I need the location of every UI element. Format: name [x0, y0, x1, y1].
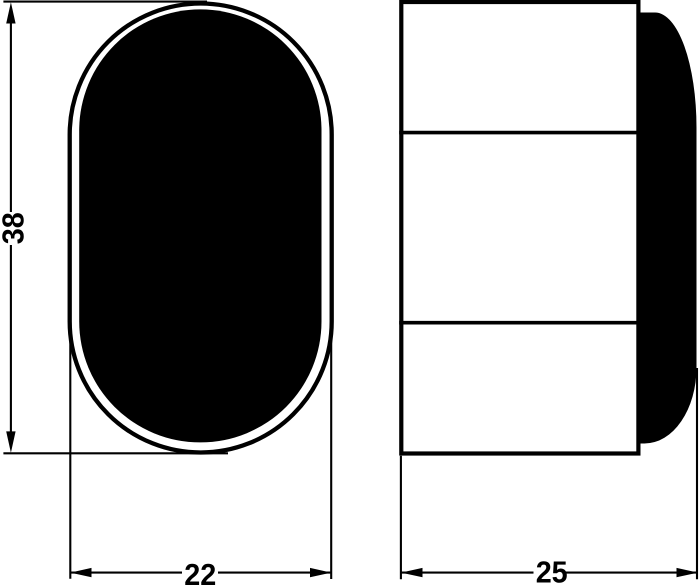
svg-text:38: 38 — [0, 212, 30, 244]
svg-text:22: 22 — [184, 557, 216, 585]
svg-text:25: 25 — [536, 554, 568, 585]
